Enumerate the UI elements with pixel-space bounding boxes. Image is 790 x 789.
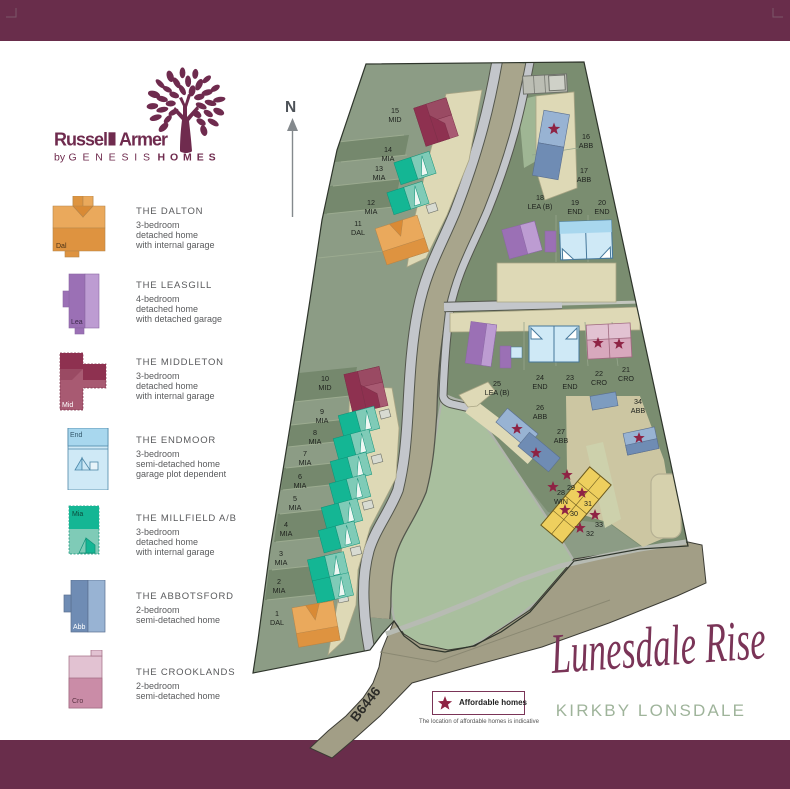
svg-text:ABB: ABB <box>577 175 592 184</box>
svg-text:10: 10 <box>321 374 329 383</box>
svg-text:16: 16 <box>582 132 590 141</box>
svg-text:22: 22 <box>595 369 603 378</box>
svg-text:5: 5 <box>293 494 297 503</box>
svg-text:LEA (B): LEA (B) <box>528 202 553 211</box>
svg-text:24: 24 <box>536 373 544 382</box>
svg-text:12: 12 <box>367 198 375 207</box>
svg-text:ABB: ABB <box>631 406 646 415</box>
svg-text:MIA: MIA <box>309 437 322 446</box>
svg-text:14: 14 <box>384 145 392 154</box>
svg-text:32: 32 <box>586 529 594 538</box>
svg-text:DAL: DAL <box>270 618 284 627</box>
svg-text:LEA (B): LEA (B) <box>485 388 510 397</box>
svg-text:28: 28 <box>557 488 565 497</box>
svg-text:ABB: ABB <box>554 436 569 445</box>
svg-text:27: 27 <box>557 427 565 436</box>
svg-text:18: 18 <box>536 193 544 202</box>
svg-text:31: 31 <box>584 499 592 508</box>
svg-text:MIA: MIA <box>273 586 286 595</box>
svg-text:21: 21 <box>622 365 630 374</box>
svg-text:MIA: MIA <box>289 503 302 512</box>
svg-text:MIA: MIA <box>280 529 293 538</box>
svg-text:4: 4 <box>284 520 288 529</box>
svg-text:34: 34 <box>634 397 642 406</box>
svg-text:17: 17 <box>580 166 588 175</box>
svg-text:30: 30 <box>570 509 578 518</box>
svg-text:7: 7 <box>303 449 307 458</box>
svg-text:19: 19 <box>571 198 579 207</box>
svg-text:1: 1 <box>275 609 279 618</box>
svg-text:MIA: MIA <box>373 173 386 182</box>
svg-text:ABB: ABB <box>533 412 548 421</box>
svg-text:9: 9 <box>320 407 324 416</box>
svg-text:26: 26 <box>536 403 544 412</box>
svg-text:11: 11 <box>354 219 361 228</box>
svg-text:DAL: DAL <box>351 228 365 237</box>
svg-text:END: END <box>594 207 609 216</box>
svg-text:ABB: ABB <box>579 141 594 150</box>
svg-text:END: END <box>532 382 547 391</box>
svg-text:29: 29 <box>567 483 575 492</box>
svg-text:2: 2 <box>277 577 281 586</box>
svg-text:MIA: MIA <box>294 481 307 490</box>
svg-text:END: END <box>562 382 577 391</box>
svg-text:MID: MID <box>388 115 401 124</box>
svg-text:23: 23 <box>566 373 574 382</box>
svg-text:CRO: CRO <box>591 378 607 387</box>
svg-text:END: END <box>567 207 582 216</box>
svg-text:MID: MID <box>318 383 331 392</box>
svg-text:MIA: MIA <box>275 558 288 567</box>
svg-text:MIA: MIA <box>299 458 312 467</box>
svg-text:6: 6 <box>298 472 302 481</box>
svg-text:25: 25 <box>493 379 501 388</box>
svg-text:MIA: MIA <box>316 416 329 425</box>
svg-text:33: 33 <box>595 520 603 529</box>
svg-text:13: 13 <box>375 164 383 173</box>
svg-text:MIA: MIA <box>382 154 395 163</box>
svg-text:3: 3 <box>279 549 283 558</box>
svg-text:20: 20 <box>598 198 606 207</box>
svg-text:15: 15 <box>391 106 399 115</box>
svg-text:8: 8 <box>313 428 317 437</box>
svg-text:WIN: WIN <box>554 497 568 506</box>
svg-text:CRO: CRO <box>618 374 634 383</box>
svg-text:MIA: MIA <box>365 207 378 216</box>
